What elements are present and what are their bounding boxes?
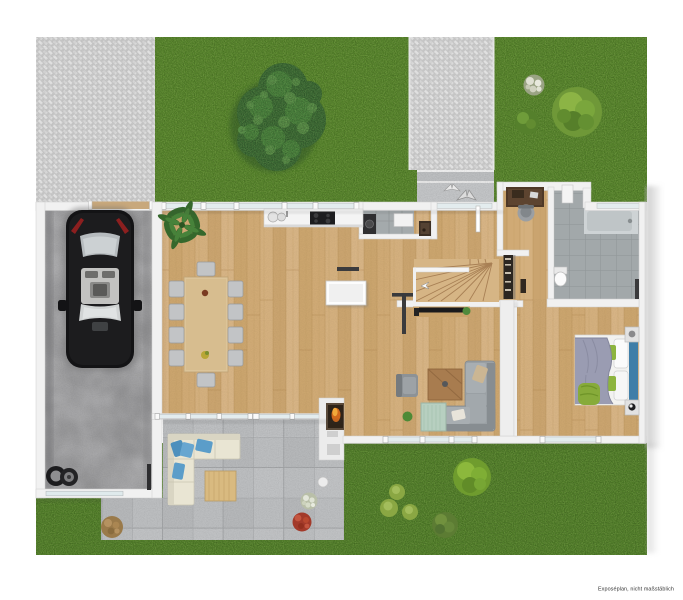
svg-text:Exposéplan, nicht maßstäblich: Exposéplan, nicht maßstäblich	[598, 587, 674, 593]
